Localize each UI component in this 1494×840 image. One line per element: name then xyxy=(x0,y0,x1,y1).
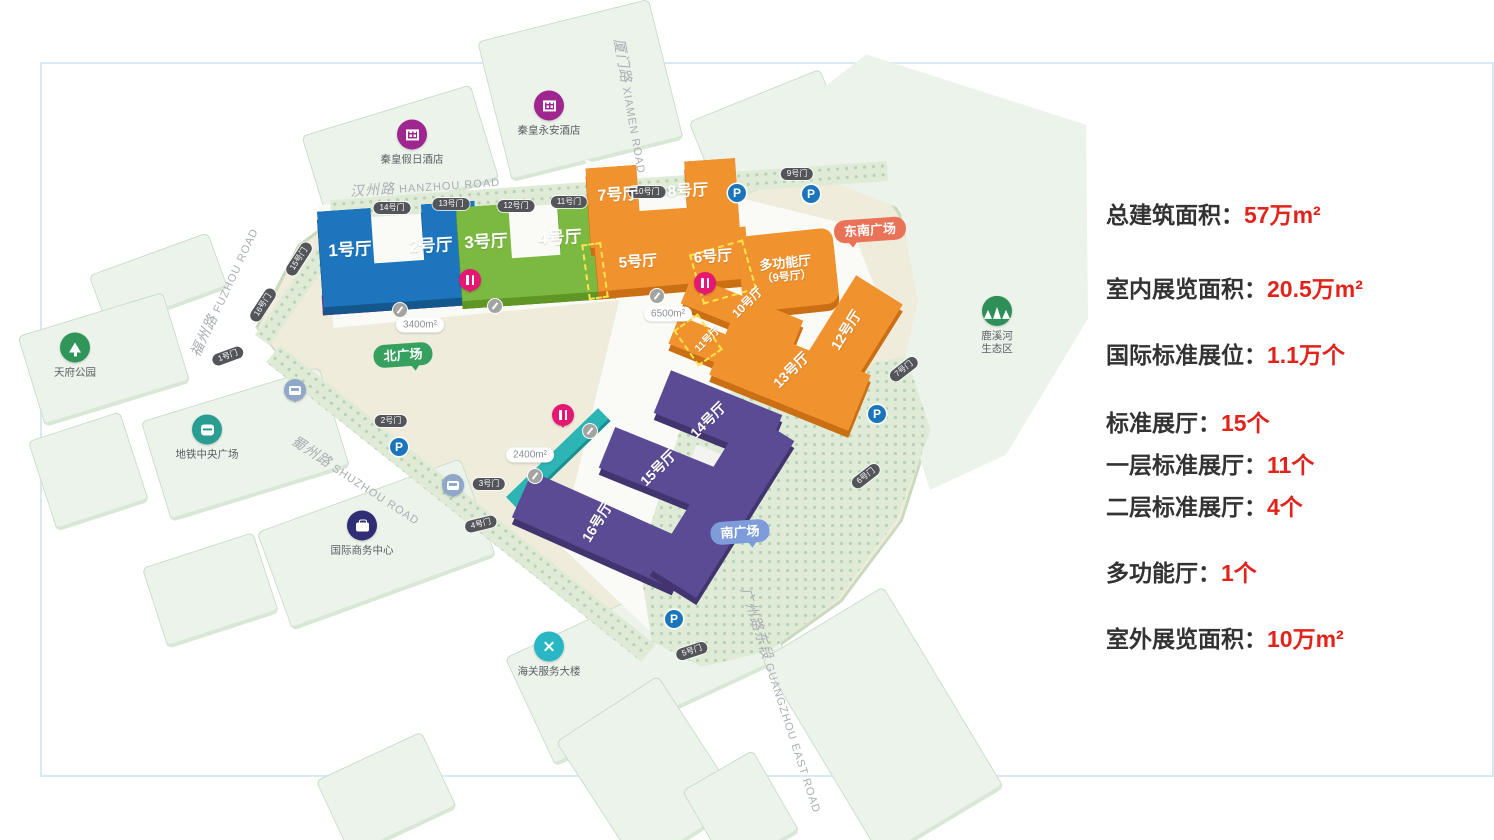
building-icon xyxy=(406,129,419,140)
hall-label: 5号厅 xyxy=(618,252,657,272)
road-name-zh: 汉州路 xyxy=(349,180,395,199)
parking-icon: P xyxy=(802,185,820,203)
hall-label: 6号厅 xyxy=(693,247,732,267)
stat-row: 一层标准展厅：11个 xyxy=(1106,446,1363,480)
stat-value: 15个 xyxy=(1221,410,1270,436)
parking-icon: P xyxy=(728,184,746,202)
plaza-label-tail xyxy=(409,362,422,377)
building-icon xyxy=(543,100,556,111)
poi-label: 秦皇永安酒店 xyxy=(499,124,599,137)
bus-icon xyxy=(447,481,459,490)
building-icon-circle xyxy=(534,90,564,120)
bus-stop-pin xyxy=(284,379,306,401)
area-size-pill: 2400m² xyxy=(506,448,554,463)
stat-value: 11个 xyxy=(1267,452,1314,478)
gate-pill: 13号门 xyxy=(433,198,470,210)
gate-pill: 9号门 xyxy=(781,168,813,180)
stat-row: 标准展厅：15个 xyxy=(1106,404,1363,438)
poi-label: 地铁中央广场 xyxy=(157,448,257,461)
poi-label: 鹿溪河 xyxy=(947,330,1047,343)
stat-label: 一层标准展厅： xyxy=(1106,452,1267,478)
poi-building: 秦皇假日酒店 xyxy=(362,119,462,166)
hall-label: 8号厅 xyxy=(667,182,709,203)
statistics-panel: 总建筑面积：57万m² 室内展览面积：20.5万m² 国际标准展位：1.1万个 … xyxy=(1106,196,1363,654)
fork-knife-icon xyxy=(701,278,709,289)
stat-label: 总建筑面积： xyxy=(1106,202,1244,228)
poi-label-line2: 生态区 xyxy=(947,343,1047,356)
plaza-label-tail xyxy=(746,539,759,554)
poi-customs: 海关服务大楼 xyxy=(499,631,599,678)
hall-label: 7号厅 xyxy=(597,186,639,207)
hall-label: 4号厅 xyxy=(538,227,582,249)
poi-label: 秦皇假日酒店 xyxy=(362,153,462,166)
trees-icon-circle xyxy=(982,296,1012,326)
building-icon-circle xyxy=(397,119,427,149)
parking-icon: P xyxy=(868,405,886,423)
stat-row: 室内展览面积：20.5万m² xyxy=(1106,270,1363,304)
customs-icon xyxy=(542,639,556,653)
stat-label: 标准展厅： xyxy=(1106,410,1221,436)
stat-value: 20.5万m² xyxy=(1267,276,1363,302)
stat-label: 室外展览面积： xyxy=(1106,626,1267,652)
hall-label: 多功能厅（9号厅） xyxy=(759,254,814,287)
plaza-label: 南广场 xyxy=(710,518,770,545)
metro-icon xyxy=(201,424,214,435)
stat-value: 1个 xyxy=(1221,560,1257,586)
poi-label: 天府公园 xyxy=(25,366,125,379)
walkway-icon xyxy=(393,303,407,317)
poi-label: 海关服务大楼 xyxy=(499,665,599,678)
fork-knife-icon xyxy=(559,410,567,421)
parking-icon: P xyxy=(665,610,683,628)
stat-label: 多功能厅： xyxy=(1106,560,1221,586)
stat-row: 二层标准展厅：4个 xyxy=(1106,488,1363,522)
area-size-pill: 6500m² xyxy=(644,307,692,322)
gate-pill: 3号门 xyxy=(473,478,505,490)
poi-briefcase: 国际商务中心 xyxy=(312,510,412,557)
fork-knife-icon xyxy=(466,275,474,286)
customs-icon-circle xyxy=(534,631,564,661)
trees-icon xyxy=(984,303,1010,319)
stat-value: 57万m² xyxy=(1244,202,1321,228)
stat-value: 1.1万个 xyxy=(1267,342,1345,368)
stat-row: 多功能厅：1个 xyxy=(1106,554,1363,588)
stat-label: 室内展览面积： xyxy=(1106,276,1267,302)
walkway-icon xyxy=(488,299,502,313)
plaza-label: 北广场 xyxy=(373,341,433,368)
walkway-icon xyxy=(583,424,597,438)
stat-row: 总建筑面积：57万m² xyxy=(1106,196,1363,230)
hall-label: 2号厅 xyxy=(409,235,453,257)
stat-row: 国际标准展位：1.1万个 xyxy=(1106,336,1363,370)
restaurant-pin xyxy=(552,404,574,426)
parking-icon: P xyxy=(390,438,408,456)
gate-pill: 11号门 xyxy=(551,196,587,208)
gate-pill: 2号门 xyxy=(375,415,407,427)
walkway-icon xyxy=(528,469,542,483)
site-map-infographic: 汉州路 HANZHOU ROAD福州路 FUZHOU ROAD蜀州路 SHUZH… xyxy=(0,0,1494,840)
tree-icon-circle xyxy=(60,332,90,362)
hall-label: 1号厅 xyxy=(328,239,372,261)
poi-building: 秦皇永安酒店 xyxy=(499,90,599,137)
restaurant-pin xyxy=(694,272,716,294)
hall-label: 3号厅 xyxy=(464,231,508,253)
briefcase-icon xyxy=(356,522,369,531)
area-size-pill: 3400m² xyxy=(396,318,444,333)
tree-icon xyxy=(69,336,81,352)
gate-pill: 14号门 xyxy=(374,202,411,214)
poi-metro: 地铁中央广场 xyxy=(157,414,257,461)
metro-icon-circle xyxy=(192,414,222,444)
bus-icon xyxy=(289,386,301,395)
poi-trees: 鹿溪河生态区 xyxy=(947,296,1047,356)
stat-value: 10万m² xyxy=(1267,626,1344,652)
poi-tree: 天府公园 xyxy=(25,332,125,379)
bus-stop-pin xyxy=(442,474,464,496)
briefcase-icon-circle xyxy=(347,510,377,540)
stat-label: 二层标准展厅： xyxy=(1106,494,1267,520)
plaza-label-tail xyxy=(847,239,860,254)
restaurant-pin xyxy=(459,269,481,291)
walkway-icon xyxy=(650,289,664,303)
poi-label: 国际商务中心 xyxy=(312,544,412,557)
gate-pill: 12号门 xyxy=(498,200,535,212)
stat-label: 国际标准展位： xyxy=(1106,342,1267,368)
stat-value: 4个 xyxy=(1267,494,1303,520)
stat-row: 室外展览面积：10万m² xyxy=(1106,620,1363,654)
